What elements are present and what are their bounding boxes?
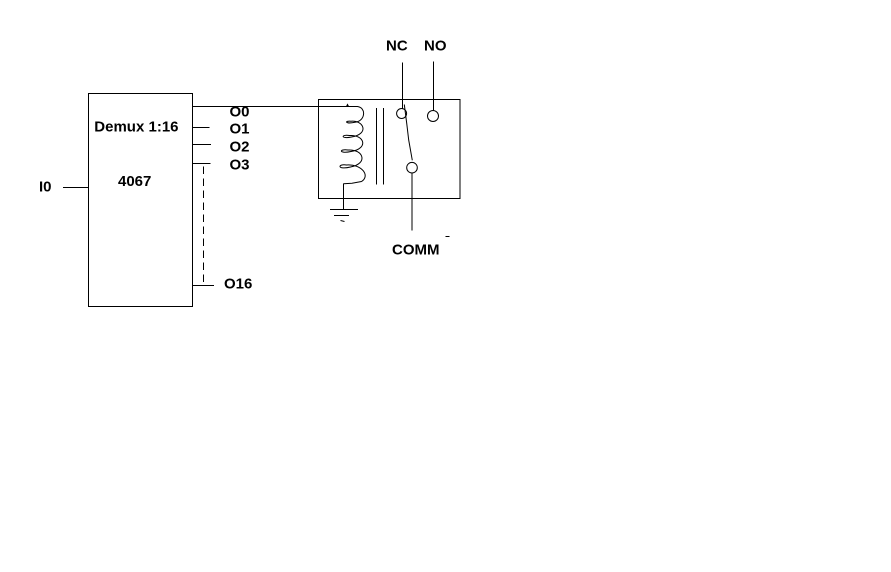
svg-text:O2: O2	[230, 139, 250, 156]
svg-text:Demux 1:16: Demux 1:16	[94, 119, 178, 136]
svg-text:O16: O16	[224, 276, 252, 293]
svg-text:COMM: COMM	[392, 242, 440, 259]
svg-text:NC: NC	[386, 38, 408, 55]
svg-text:O0: O0	[230, 104, 250, 121]
svg-text:NO: NO	[424, 38, 447, 55]
svg-text:4067: 4067	[118, 173, 151, 190]
svg-text:I0: I0	[39, 179, 52, 196]
svg-text:O1: O1	[230, 121, 250, 138]
svg-text:O3: O3	[230, 157, 250, 174]
